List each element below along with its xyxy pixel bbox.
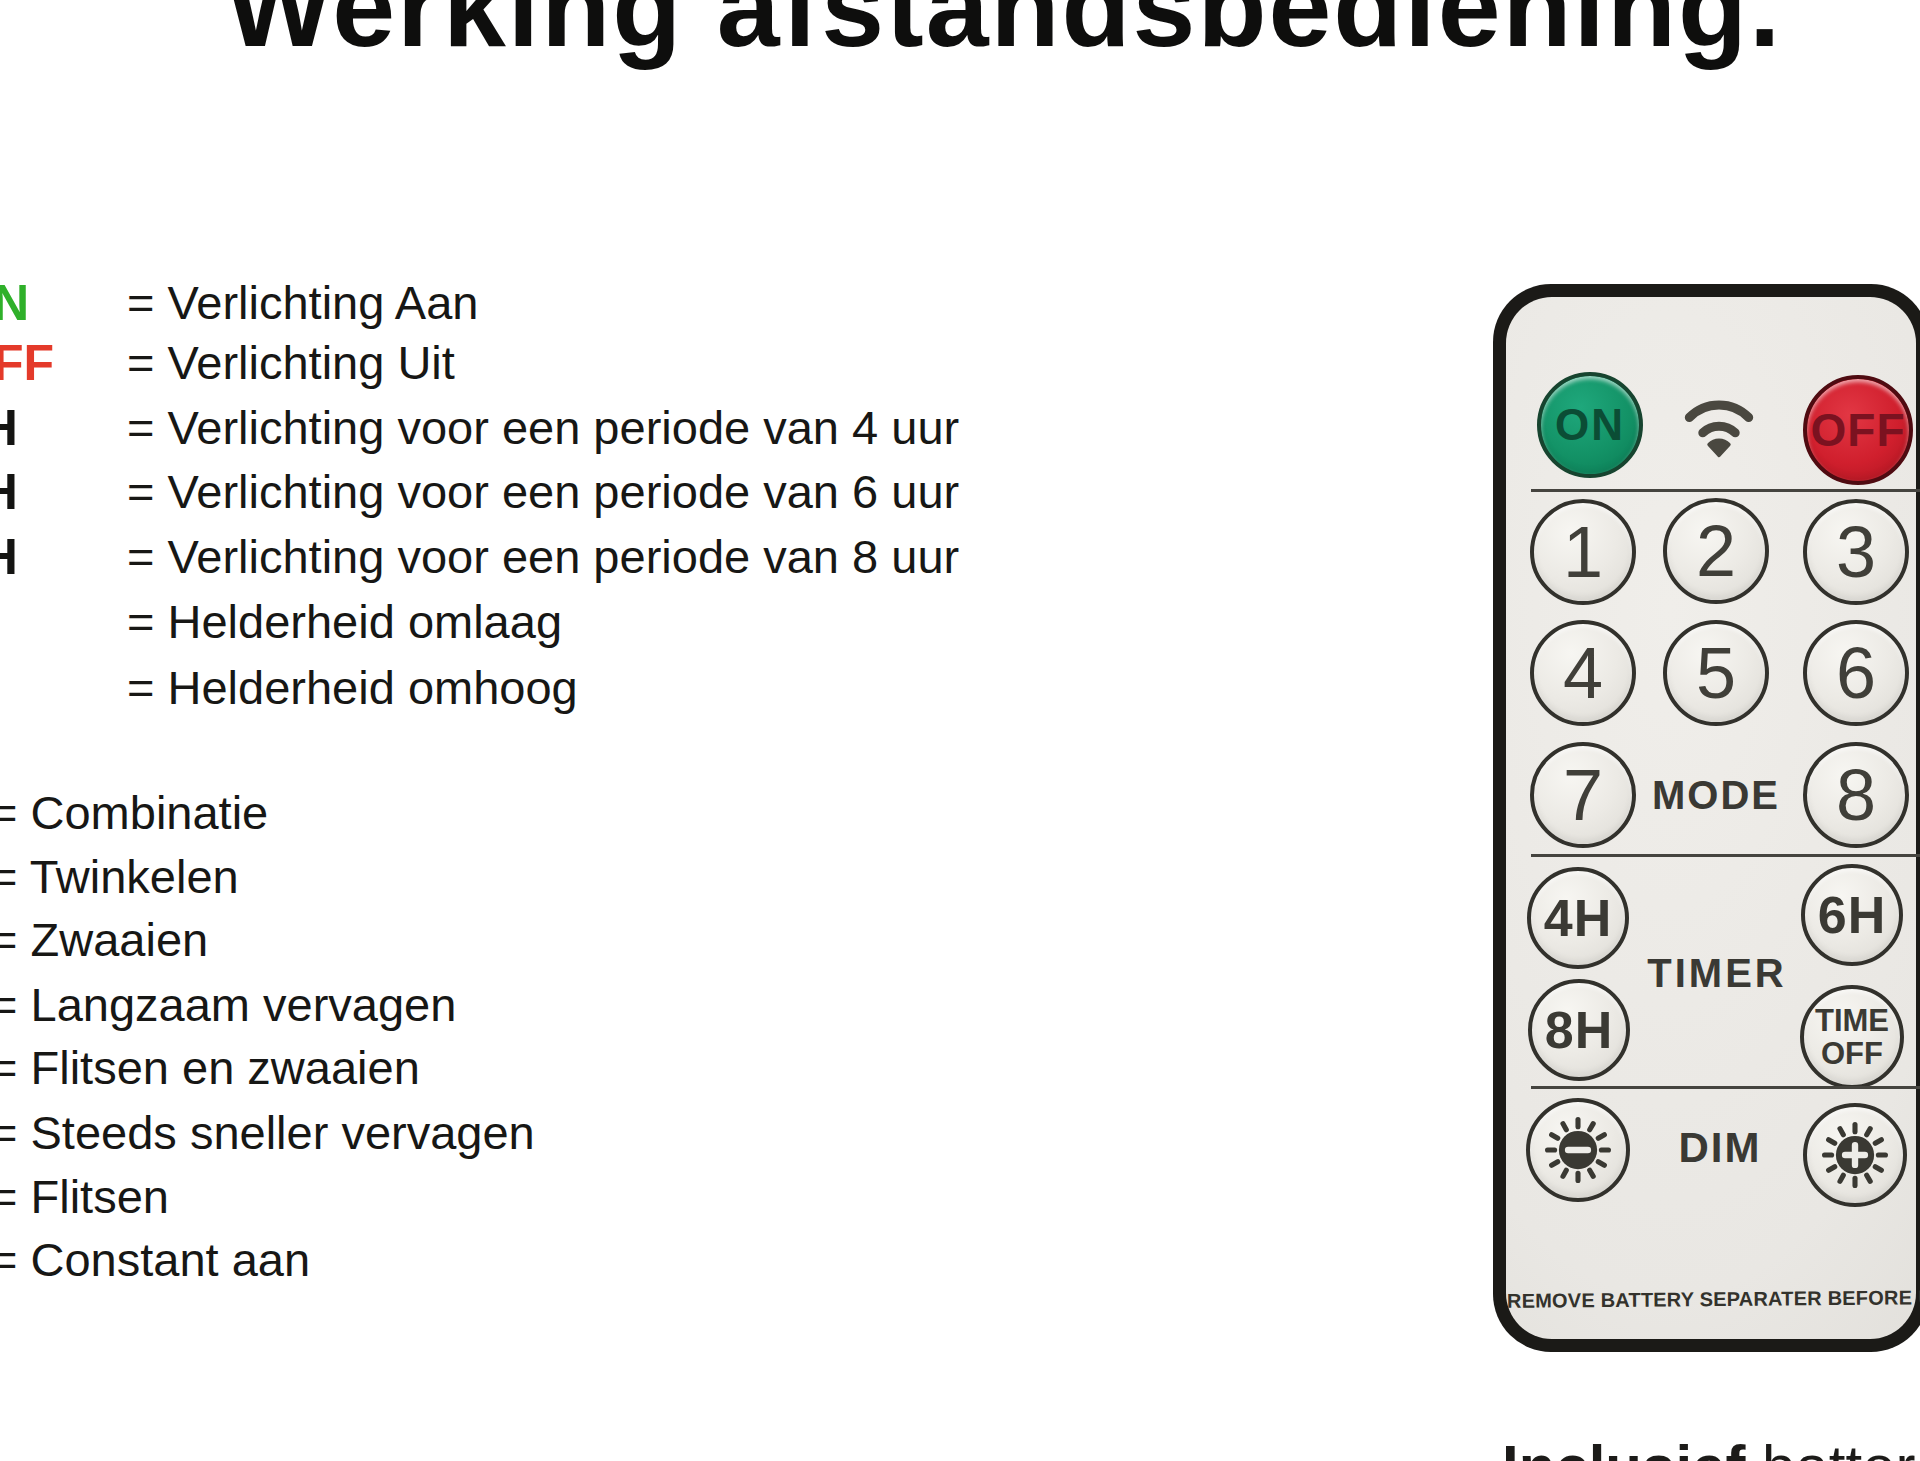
legend-text: = Verlichting voor een periode van 6 uur bbox=[127, 460, 959, 524]
legend-row: ON = Verlichting Aan bbox=[0, 271, 1250, 335]
time-off-button: TIME OFF bbox=[1800, 985, 1904, 1089]
digit-button-4: 4 bbox=[1530, 620, 1636, 726]
timer-8h-button: 8H bbox=[1528, 979, 1630, 1081]
legend-row: OFF = Verlichting Uit bbox=[0, 331, 1250, 395]
remote-control: ON OFF 1 2 3 4 5 6 7 MODE 8 4H 6H TIMER … bbox=[1493, 284, 1920, 1352]
page-title: Werking afstandsbediening. bbox=[44, 0, 1920, 64]
legend-text: = Verlichting voor een periode van 4 uur bbox=[127, 396, 959, 460]
digit-button-8: 8 bbox=[1803, 742, 1909, 848]
digit-button-3: 3 bbox=[1803, 499, 1909, 605]
footer-rest: batter bbox=[1745, 1433, 1915, 1461]
legend-text: = Helderheid omhoog bbox=[127, 656, 578, 720]
legend-text: = Verlichting Aan bbox=[127, 271, 478, 335]
legend-row: = Flitsen en zwaaien bbox=[0, 1036, 1250, 1100]
separator-line bbox=[1531, 854, 1920, 857]
digit-button-2: 2 bbox=[1663, 498, 1769, 604]
legend-text: = Steeds sneller vervagen bbox=[0, 1101, 535, 1165]
dim-label: DIM bbox=[1640, 1124, 1800, 1172]
legend-label-6h: 6H bbox=[0, 460, 18, 524]
legend-row: = Twinkelen bbox=[0, 845, 1250, 909]
timer-label: TIMER bbox=[1617, 949, 1817, 997]
dim-minus-button bbox=[1526, 1098, 1630, 1202]
off-button: OFF bbox=[1803, 375, 1913, 485]
digit-button-5: 5 bbox=[1663, 620, 1769, 726]
on-button: ON bbox=[1537, 372, 1643, 478]
separator-line bbox=[1531, 489, 1920, 492]
legend-text: = Verlichting voor een periode van 8 uur bbox=[127, 525, 959, 589]
legend-text: = Flitsen en zwaaien bbox=[0, 1036, 420, 1100]
mode-label: MODE bbox=[1623, 770, 1809, 820]
legend-label-off: OFF bbox=[0, 331, 54, 395]
legend-label-4h: 4H bbox=[0, 396, 18, 460]
digit-button-7: 7 bbox=[1530, 742, 1636, 848]
legend-row: 6H = Verlichting voor een periode van 6 … bbox=[0, 460, 1250, 524]
legend-row: = Flitsen bbox=[0, 1165, 1250, 1229]
legend-row: = Helderheid omhoog bbox=[0, 656, 1250, 720]
legend-text: = Helderheid omlaag bbox=[127, 590, 562, 654]
legend-label-8h: 8H bbox=[0, 525, 18, 589]
legend-row: 8H = Verlichting voor een periode van 8 … bbox=[0, 525, 1250, 589]
legend-text: = Zwaaien bbox=[0, 908, 208, 972]
wifi-icon bbox=[1674, 384, 1764, 460]
legend-text: = Combinatie bbox=[0, 781, 268, 845]
legend-text: = Langzaam vervagen bbox=[0, 973, 456, 1037]
digit-button-6: 6 bbox=[1803, 620, 1909, 726]
legend-text: = Verlichting Uit bbox=[127, 331, 455, 395]
digit-button-1: 1 bbox=[1530, 499, 1636, 605]
legend-text: = Twinkelen bbox=[0, 845, 239, 909]
time-off-line2: OFF bbox=[1815, 1037, 1889, 1070]
sun-minus-icon bbox=[1544, 1116, 1612, 1184]
separator-line bbox=[1531, 1086, 1920, 1089]
legend-row: = Combinatie bbox=[0, 781, 1250, 845]
legend-row: = Helderheid omlaag bbox=[0, 590, 1250, 654]
legend-text: = Flitsen bbox=[0, 1165, 169, 1229]
legend-row: = Constant aan bbox=[0, 1228, 1250, 1292]
time-off-line1: TIME bbox=[1815, 1004, 1889, 1037]
legend-label-on: ON bbox=[0, 271, 29, 335]
page: Werking afstandsbediening. ON = Verlicht… bbox=[0, 0, 1920, 1461]
legend-row: = Steeds sneller vervagen bbox=[0, 1101, 1250, 1165]
dim-plus-button bbox=[1803, 1103, 1907, 1207]
legend-row: 4H = Verlichting voor een periode van 4 … bbox=[0, 396, 1250, 460]
legend-text: = Constant aan bbox=[0, 1228, 310, 1292]
footer-text: Inclusief batter bbox=[1502, 1432, 1916, 1461]
battery-note: REMOVE BATTERY SEPARATER BEFORE USE bbox=[1507, 1286, 1920, 1313]
timer-4h-button: 4H bbox=[1527, 867, 1629, 969]
sun-plus-icon bbox=[1821, 1121, 1889, 1189]
footer-bold: Inclusief bbox=[1502, 1433, 1745, 1461]
legend-row: = Zwaaien bbox=[0, 908, 1250, 972]
legend-row: = Langzaam vervagen bbox=[0, 973, 1250, 1037]
